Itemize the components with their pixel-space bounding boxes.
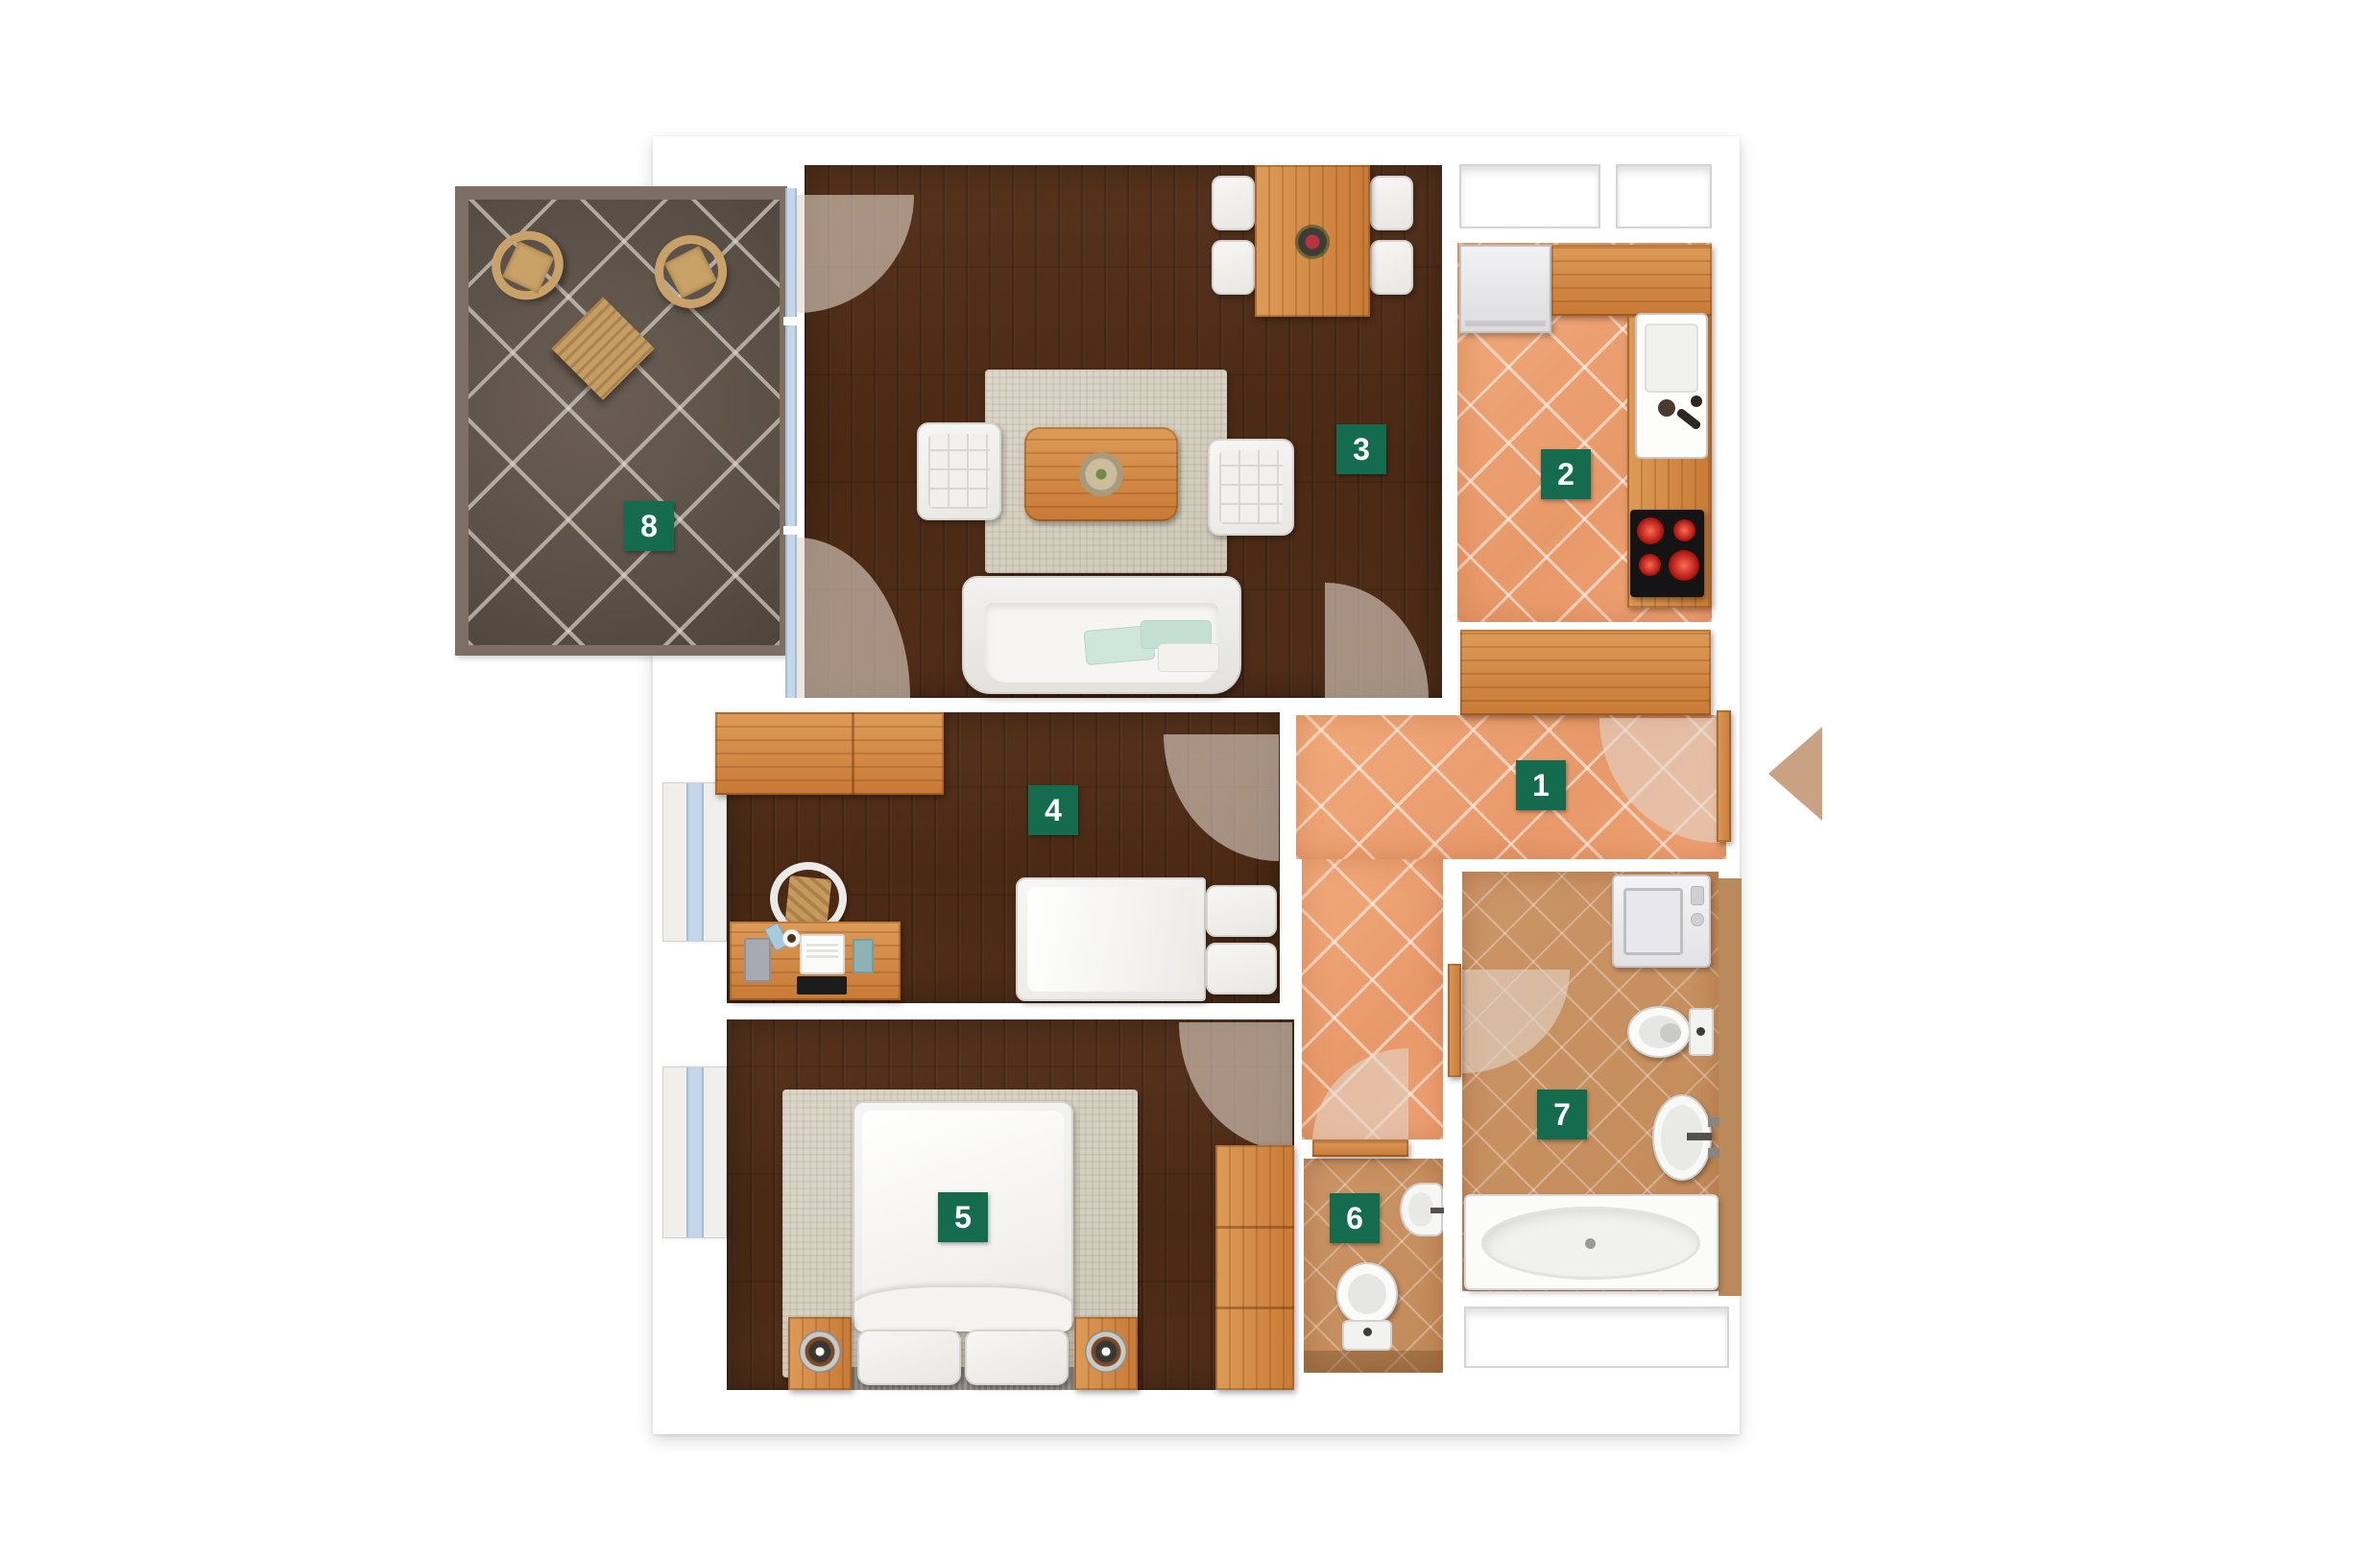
nightstand-speaker: [788, 1317, 852, 1390]
laptop-keyboard-icon: [797, 976, 847, 995]
bathroom-door: [1448, 964, 1461, 1077]
wc-door: [1312, 1139, 1408, 1157]
kitchen-sink-icon: [1635, 313, 1708, 459]
room-number: 7: [1553, 1097, 1571, 1133]
glass-wall-gap: [783, 526, 799, 535]
room-number: 2: [1557, 457, 1575, 492]
laptop-icon: [800, 934, 845, 974]
sofa: [962, 576, 1241, 694]
cooktop-icon: [1630, 510, 1704, 597]
pillow-icon: [1206, 885, 1277, 937]
armchair-icon: [917, 422, 1001, 520]
room-number: 1: [1532, 768, 1550, 803]
wash-basin-icon: [1652, 1094, 1719, 1181]
room-label-8: 8: [624, 501, 674, 551]
bedroom5-wardrobe: [1215, 1145, 1294, 1390]
bedroom4-window-icon: [662, 782, 727, 942]
pillow-icon: [1206, 943, 1277, 995]
room-label-7: 7: [1537, 1090, 1587, 1139]
room-label-3: 3: [1336, 424, 1386, 474]
hallway-sideboard: [1460, 630, 1711, 715]
room-label-5: 5: [938, 1192, 988, 1242]
room-number: 3: [1353, 432, 1370, 467]
pillow-icon: [965, 1330, 1069, 1385]
cushion-icon: [1158, 643, 1219, 672]
armchair-icon: [1208, 439, 1294, 536]
room-label-2: 2: [1541, 449, 1591, 499]
bedroom4-wardrobe: [715, 712, 944, 795]
room-label-6: 6: [1330, 1193, 1380, 1243]
room-label-1: 1: [1516, 760, 1566, 810]
toilet-icon: [1627, 1004, 1716, 1060]
tablet-icon: [744, 938, 771, 982]
bathroom-side-wall: [1719, 878, 1742, 1296]
room-number: 8: [640, 509, 658, 544]
refrigerator-icon: [1459, 245, 1551, 333]
notebook-icon: [853, 939, 874, 973]
coffee-cup-icon: [783, 930, 800, 947]
desk: [730, 922, 901, 1000]
single-bed: [1016, 877, 1206, 1001]
pillow-icon: [857, 1330, 961, 1385]
wc-floor-shadow: [1304, 1351, 1443, 1373]
serving-bowl-icon: [1079, 452, 1123, 496]
room-label-4: 4: [1028, 785, 1078, 835]
dining-chair-icon: [1370, 176, 1413, 230]
nightstand-speaker: [1074, 1317, 1138, 1390]
washing-machine-icon: [1612, 875, 1711, 968]
bathroom-window-icon: [1464, 1306, 1729, 1368]
entrance-door: [1717, 710, 1731, 842]
coffee-table: [1024, 427, 1178, 521]
entrance-arrow-icon: [1768, 727, 1822, 821]
kitchen-window-icon: [1459, 164, 1600, 228]
dining-chair-icon: [1212, 240, 1255, 295]
glass-wall-gap: [783, 317, 799, 325]
dining-table: [1255, 165, 1370, 317]
room-number: 4: [1045, 793, 1062, 828]
floor-plan-page: 8 3: [0, 0, 2380, 1558]
dining-chair-icon: [1212, 176, 1255, 230]
bathtub-icon: [1464, 1194, 1719, 1290]
dining-chair-icon: [1370, 240, 1413, 295]
kitchen-window-icon: [1616, 164, 1712, 228]
balcony-glass-wall: [785, 188, 797, 698]
toilet-icon: [1336, 1262, 1398, 1353]
flower-vase-icon: [1298, 228, 1327, 256]
kitchen-counter: [1551, 245, 1712, 316]
room-number: 6: [1346, 1201, 1363, 1236]
room-number: 5: [954, 1200, 972, 1235]
bedroom5-window-icon: [662, 1067, 727, 1238]
hand-basin-icon: [1400, 1183, 1443, 1236]
